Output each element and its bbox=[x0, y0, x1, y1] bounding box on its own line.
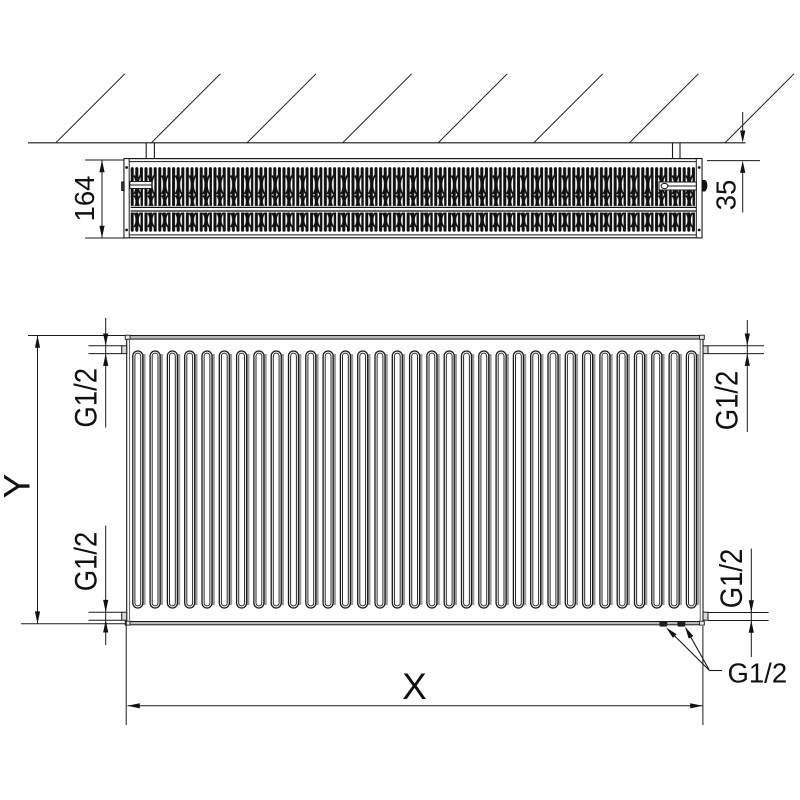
svg-text:G1/2: G1/2 bbox=[69, 368, 104, 428]
svg-text:35: 35 bbox=[711, 180, 742, 211]
svg-text:G1/2: G1/2 bbox=[710, 371, 745, 431]
svg-text:G1/2: G1/2 bbox=[714, 549, 749, 609]
svg-text:G1/2: G1/2 bbox=[728, 658, 788, 689]
svg-text:G1/2: G1/2 bbox=[69, 532, 104, 592]
svg-text:X: X bbox=[402, 666, 427, 707]
svg-text:164: 164 bbox=[69, 176, 100, 222]
svg-text:Y: Y bbox=[0, 474, 38, 499]
